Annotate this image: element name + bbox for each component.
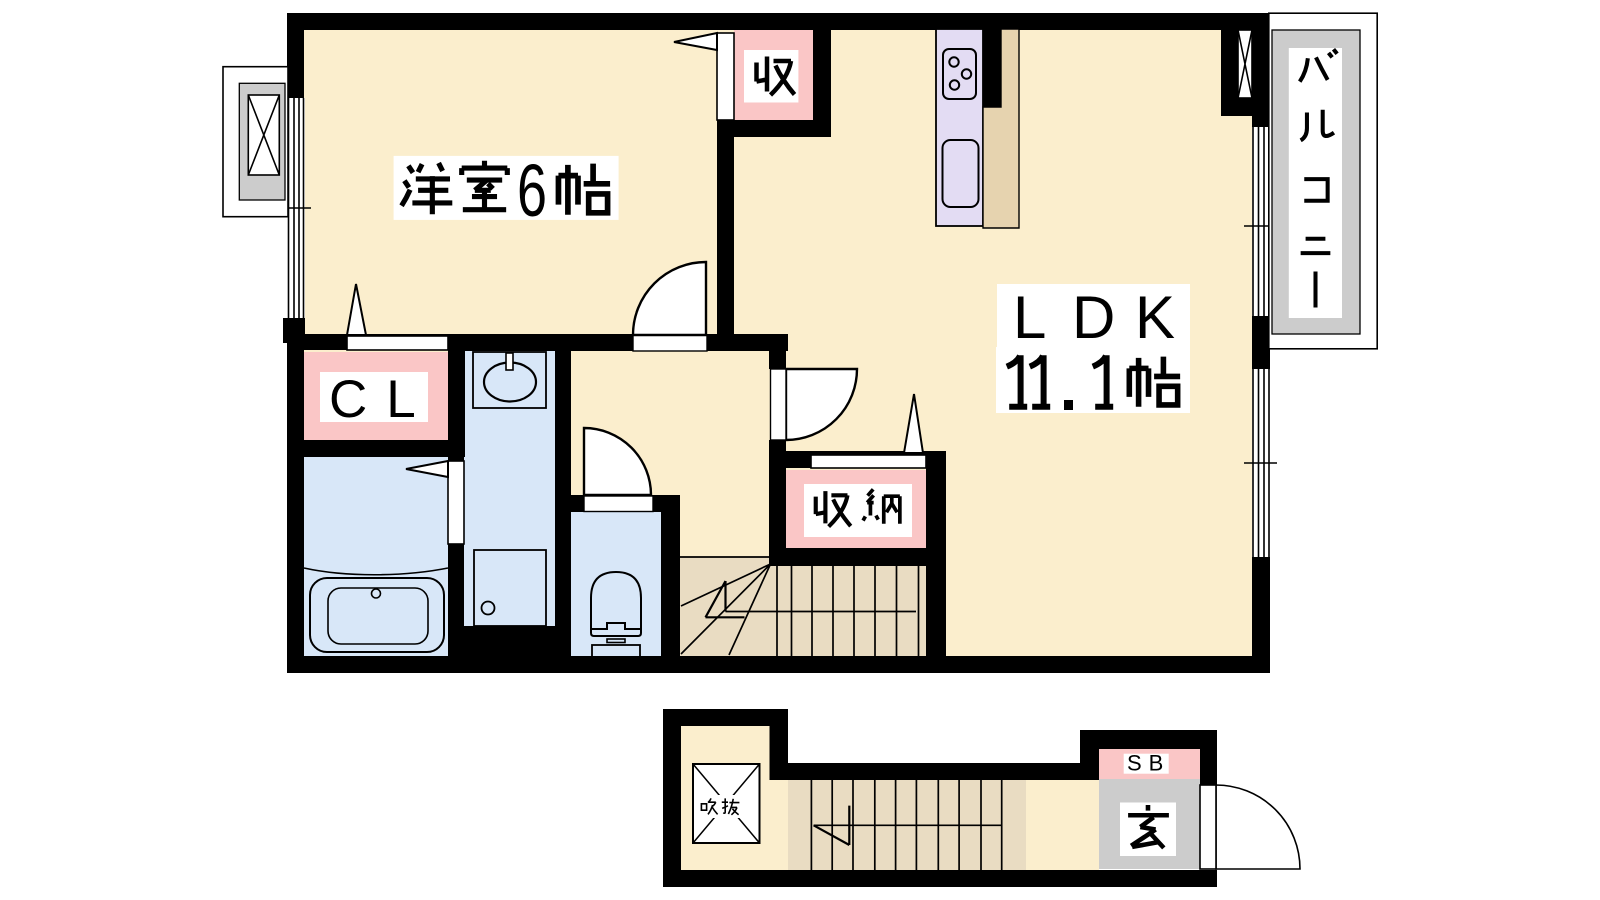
svg-text:CL: CL: [329, 370, 435, 429]
svg-text:K: K: [1135, 284, 1175, 351]
svg-text:D: D: [1072, 284, 1115, 351]
svg-text:SB: SB: [1127, 751, 1170, 776]
svg-text:L: L: [1013, 284, 1046, 351]
svg-text:6: 6: [517, 149, 547, 232]
